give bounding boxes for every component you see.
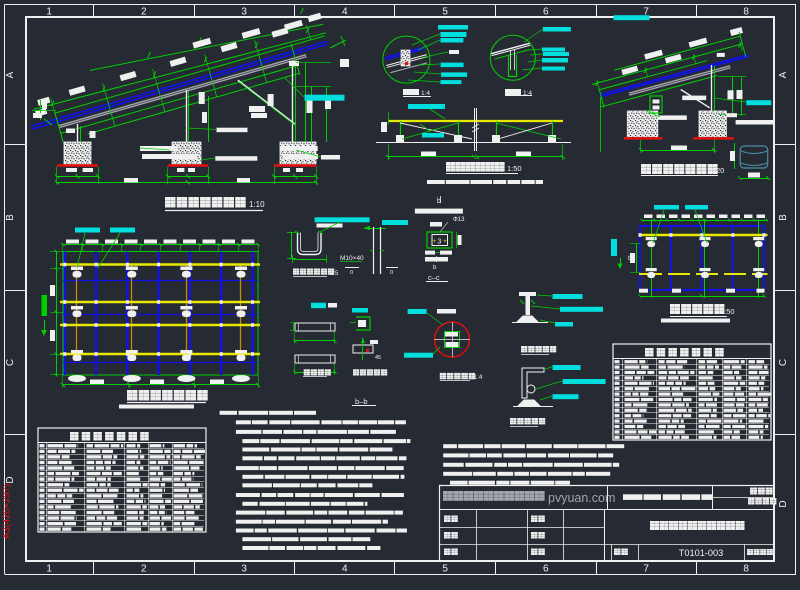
svg-text:M10×40: M10×40: [340, 255, 364, 262]
svg-text:T0101-003: T0101-003: [679, 548, 723, 558]
svg-text:1:50: 1:50: [720, 307, 735, 316]
svg-text:1:5: 1:5: [330, 271, 339, 277]
svg-text:6: 6: [543, 7, 549, 18]
svg-text:1:4: 1:4: [421, 90, 430, 97]
svg-text:Φ13: Φ13: [453, 217, 465, 223]
svg-text:5: 5: [442, 7, 448, 18]
svg-text:0: 0: [350, 270, 353, 276]
svg-text:1:50: 1:50: [507, 164, 522, 173]
svg-text:5: 5: [442, 564, 448, 575]
svg-text:D: D: [5, 476, 16, 483]
svg-text:D: D: [778, 500, 789, 507]
svg-text:3: 3: [241, 564, 247, 575]
svg-text:8: 8: [743, 564, 749, 575]
svg-text:C: C: [778, 359, 789, 366]
svg-text:7: 7: [643, 564, 649, 575]
svg-text:B: B: [5, 214, 16, 221]
svg-text:1: 1: [46, 564, 52, 575]
svg-text:1:4: 1:4: [474, 375, 483, 381]
svg-text:1:50: 1:50: [192, 393, 208, 402]
svg-text:b–b: b–b: [355, 397, 368, 406]
svg-text:+: +: [433, 239, 437, 245]
svg-text:B: B: [778, 214, 789, 221]
svg-text:1:10: 1:10: [249, 200, 265, 209]
svg-text:c–c: c–c: [428, 273, 440, 282]
svg-text:1:20: 1:20: [710, 166, 725, 175]
svg-text:+: +: [443, 239, 447, 245]
svg-text:4: 4: [342, 564, 348, 575]
svg-text:3: 3: [438, 239, 442, 246]
svg-text:A: A: [778, 71, 789, 78]
svg-text:2: 2: [141, 564, 147, 575]
svg-text:pvyuan.com: pvyuan.com: [548, 491, 615, 505]
svg-text:A: A: [5, 71, 16, 78]
svg-text:8: 8: [743, 7, 749, 18]
svg-text:C: C: [5, 359, 16, 366]
svg-text:A3(420×297): A3(420×297): [2, 484, 13, 539]
svg-text:1: 1: [46, 7, 52, 18]
svg-text:4: 4: [342, 7, 348, 18]
svg-text:3: 3: [241, 7, 247, 18]
svg-text:45: 45: [375, 355, 381, 361]
svg-text:0: 0: [390, 270, 393, 276]
svg-text:6: 6: [543, 564, 549, 575]
svg-text:2: 2: [141, 7, 147, 18]
